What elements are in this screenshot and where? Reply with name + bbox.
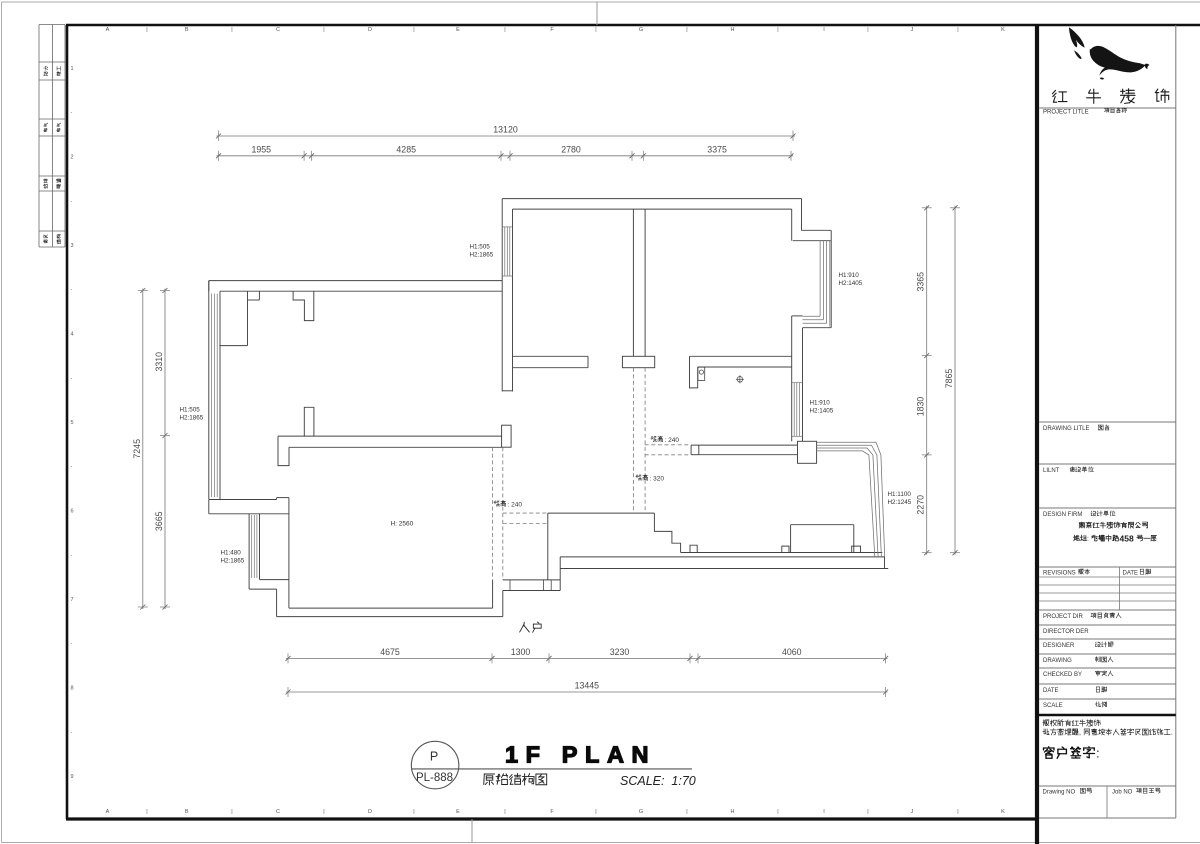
svg-text:K: K <box>1001 809 1005 815</box>
svg-text:C: C <box>276 27 280 33</box>
svg-text:SCALE: 1:70: SCALE: 1:70 <box>620 774 696 788</box>
svg-text:DRAWING LITLE: DRAWING LITLE <box>1043 426 1089 432</box>
svg-text::: : <box>1096 747 1099 761</box>
svg-text:4060: 4060 <box>782 647 802 657</box>
svg-text:DATE: DATE <box>1043 688 1059 694</box>
svg-text:P: P <box>430 750 438 764</box>
svg-text:|: | <box>777 809 778 815</box>
svg-text:1955: 1955 <box>252 145 272 155</box>
svg-text:Drawing NO: Drawing NO <box>1043 790 1076 796</box>
svg-text:E: E <box>456 27 460 33</box>
svg-text:K: K <box>1001 27 1005 33</box>
svg-text:H2:1405: H2:1405 <box>810 408 834 415</box>
svg-text:H1:505: H1:505 <box>180 407 201 414</box>
svg-text:PL-888: PL-888 <box>416 772 453 784</box>
svg-text:1300: 1300 <box>511 647 531 657</box>
svg-text:: 240: : 240 <box>665 437 680 444</box>
svg-text:2270: 2270 <box>916 495 926 515</box>
svg-text:1F PLAN: 1F PLAN <box>505 742 656 768</box>
svg-text:-: - <box>71 553 73 559</box>
svg-text:|: | <box>323 27 324 33</box>
svg-text:3: 3 <box>71 243 74 249</box>
svg-text:4675: 4675 <box>380 647 400 657</box>
svg-text:1: 1 <box>71 66 74 72</box>
svg-text:|: | <box>146 809 147 815</box>
svg-text:3375: 3375 <box>707 145 727 155</box>
svg-text:C: C <box>276 809 280 815</box>
svg-text:3230: 3230 <box>610 647 630 657</box>
svg-text:CHECKED BY: CHECKED BY <box>1043 672 1082 678</box>
svg-text:|: | <box>413 809 414 815</box>
svg-text:-: - <box>71 730 73 736</box>
svg-text:3365: 3365 <box>916 272 926 292</box>
svg-text:H2:1865: H2:1865 <box>221 558 245 565</box>
svg-text:7245: 7245 <box>132 439 142 459</box>
svg-text:,: , <box>1079 730 1081 737</box>
svg-text:8: 8 <box>71 686 74 692</box>
svg-text:-: - <box>71 199 73 205</box>
svg-text:E: E <box>456 809 460 815</box>
svg-text:: 320: : 320 <box>650 476 665 483</box>
svg-text:A: A <box>106 809 110 815</box>
svg-text:Job NO: Job NO <box>1112 790 1133 796</box>
svg-text:H1:480: H1:480 <box>221 550 242 557</box>
svg-text:6: 6 <box>71 509 74 515</box>
svg-text:DESIGN FIRM: DESIGN FIRM <box>1043 512 1082 518</box>
svg-text:|: | <box>686 809 687 815</box>
svg-text:13445: 13445 <box>575 681 600 691</box>
svg-text:|: | <box>323 809 324 815</box>
svg-text:B: B <box>185 809 189 815</box>
svg-text:2780: 2780 <box>561 145 581 155</box>
svg-text:H1:1100: H1:1100 <box>888 491 912 498</box>
svg-text:|: | <box>504 27 505 33</box>
svg-text:|: | <box>146 27 147 33</box>
svg-text:LILNT: LILNT <box>1043 468 1060 474</box>
svg-text:-: - <box>71 641 73 647</box>
svg-text:|: | <box>504 809 505 815</box>
svg-text:B: B <box>185 27 189 33</box>
svg-text:|: | <box>413 27 414 33</box>
svg-text:458: 458 <box>1120 534 1134 544</box>
svg-text:3665: 3665 <box>154 511 164 531</box>
svg-text:-: - <box>71 464 73 470</box>
svg-text:|: | <box>957 27 958 33</box>
svg-text:|: | <box>957 809 958 815</box>
svg-text:H1:910: H1:910 <box>839 272 860 279</box>
svg-text:4: 4 <box>71 332 74 338</box>
svg-text:H2:1865: H2:1865 <box>470 252 494 259</box>
svg-text:13120: 13120 <box>493 125 518 135</box>
svg-text:SCALE: SCALE <box>1043 703 1063 709</box>
svg-text:|: | <box>231 27 232 33</box>
svg-text:-: - <box>71 376 73 382</box>
svg-text::: : <box>1087 536 1089 543</box>
svg-text:G: G <box>639 809 643 815</box>
svg-text:7865: 7865 <box>944 369 954 389</box>
svg-text:.: . <box>1171 730 1173 737</box>
svg-text:H2:1245: H2:1245 <box>888 499 912 506</box>
svg-text:H: H <box>731 809 735 815</box>
svg-text:H2:1865: H2:1865 <box>180 415 204 422</box>
svg-text:-: - <box>71 287 73 293</box>
svg-text:PROJECT LITLE: PROJECT LITLE <box>1043 110 1089 116</box>
svg-text:|: | <box>231 809 232 815</box>
svg-text:2: 2 <box>71 155 74 161</box>
svg-text:5: 5 <box>71 420 74 426</box>
svg-text:DESIGNER: DESIGNER <box>1043 643 1075 649</box>
svg-text:|: | <box>867 27 868 33</box>
svg-text:DIRECTOR DER: DIRECTOR DER <box>1043 629 1089 635</box>
svg-text:1830: 1830 <box>916 397 926 417</box>
svg-text:4285: 4285 <box>396 145 416 155</box>
svg-text:|: | <box>867 809 868 815</box>
svg-text:H1:910: H1:910 <box>810 400 831 407</box>
svg-text:-: - <box>71 110 73 116</box>
svg-text:J: J <box>911 809 914 815</box>
svg-text:A: A <box>106 27 110 33</box>
svg-text:REVISIONS: REVISIONS <box>1043 571 1076 577</box>
svg-text:7: 7 <box>71 597 74 603</box>
svg-text:D: D <box>368 27 372 33</box>
svg-text:G: G <box>639 27 643 33</box>
svg-text:PROJECT DIR: PROJECT DIR <box>1043 614 1084 620</box>
svg-text:|: | <box>777 27 778 33</box>
svg-text:DATE: DATE <box>1123 571 1139 577</box>
svg-text:DRAWING: DRAWING <box>1043 658 1072 664</box>
svg-text:J: J <box>911 27 914 33</box>
svg-text:|: | <box>686 27 687 33</box>
svg-text:: 240: : 240 <box>508 502 523 509</box>
svg-text:|: | <box>595 809 596 815</box>
svg-text:H: 2560: H: 2560 <box>391 521 414 528</box>
svg-text:H2:1405: H2:1405 <box>839 280 863 287</box>
svg-text:9: 9 <box>71 774 74 780</box>
svg-text:|: | <box>595 27 596 33</box>
svg-text:H1:505: H1:505 <box>470 244 491 251</box>
svg-text:3310: 3310 <box>154 352 164 372</box>
svg-text:D: D <box>368 809 372 815</box>
svg-text:H: H <box>731 27 735 33</box>
